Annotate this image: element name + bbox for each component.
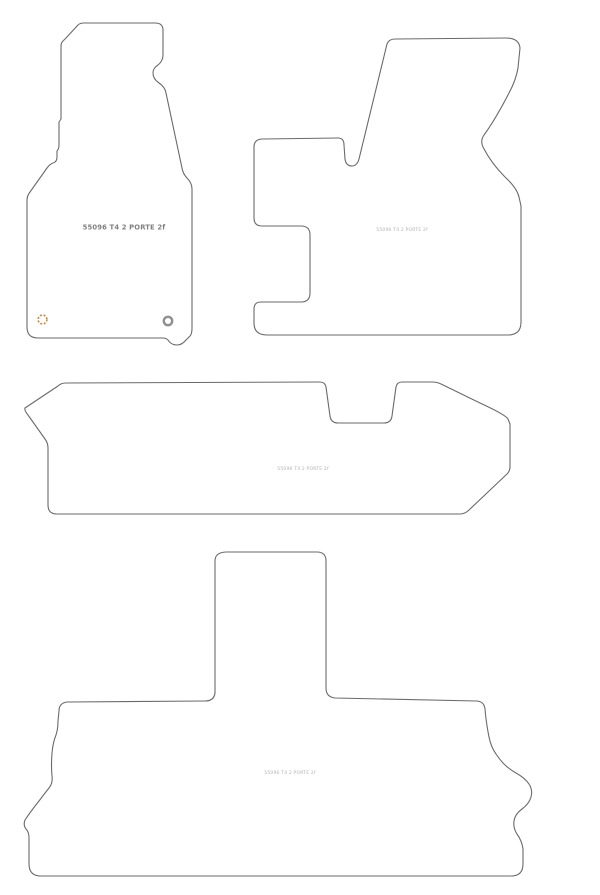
driver-mat: 55096 T4 2 PORTE 2f <box>27 23 192 345</box>
driver-mat-label: 55096 T4 2 PORTE 2f <box>83 224 167 232</box>
mat-template-sheet: 55096 T4 2 PORTE 2f 55096 T4 2 PORTE 2f … <box>0 0 600 895</box>
grommet-hole-right-icon <box>164 317 172 325</box>
front-passenger-mat-outline <box>254 38 521 335</box>
boot-mat: 55096 T4 2 PORTE 2f <box>24 552 531 876</box>
driver-mat-outline <box>27 23 192 345</box>
rear-bench-mat-label: 55096 T4 2 PORTE 2f <box>277 466 329 472</box>
boot-mat-outline <box>24 552 531 876</box>
rear-bench-mat-outline <box>25 382 510 514</box>
front-passenger-mat: 55096 T4 2 PORTE 2f <box>254 38 521 335</box>
rear-bench-mat: 55096 T4 2 PORTE 2f <box>25 382 510 514</box>
boot-mat-label: 55096 T4 2 PORTE 2f <box>264 770 316 776</box>
front-passenger-mat-label: 55096 T4 2 PORTE 2f <box>376 227 428 233</box>
car-mat-diagram: 55096 T4 2 PORTE 2f 55096 T4 2 PORTE 2f … <box>0 0 600 895</box>
